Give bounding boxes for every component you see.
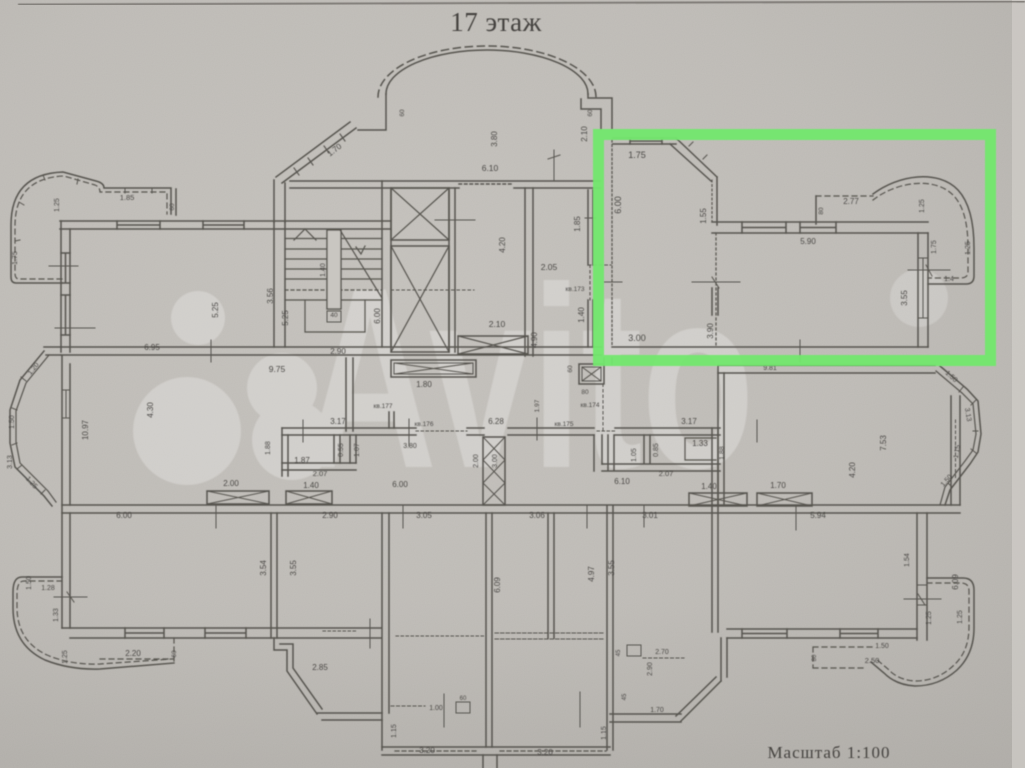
svg-text:Avito: Avito: [303, 233, 753, 522]
svg-text:6.00: 6.00: [116, 511, 132, 520]
svg-text:3.00: 3.00: [492, 454, 499, 468]
svg-text:1.54: 1.54: [904, 553, 911, 567]
svg-text:17 этаж: 17 этаж: [450, 7, 542, 37]
svg-text:1.75: 1.75: [628, 150, 646, 160]
svg-text:6.95: 6.95: [144, 343, 160, 352]
svg-text:2.85: 2.85: [312, 663, 328, 672]
svg-text:6.09: 6.09: [493, 577, 502, 593]
svg-text:2.90: 2.90: [647, 662, 654, 676]
svg-text:4.20: 4.20: [848, 462, 857, 478]
svg-text:кв.176: кв.176: [415, 421, 434, 428]
svg-text:1.75: 1.75: [931, 240, 938, 254]
svg-text:1.97: 1.97: [534, 399, 541, 412]
svg-text:60: 60: [169, 203, 176, 211]
svg-text:1.70: 1.70: [770, 481, 786, 490]
svg-text:1.25: 1.25: [62, 650, 69, 664]
svg-text:1.70: 1.70: [650, 707, 664, 714]
svg-text:2.05: 2.05: [541, 262, 558, 272]
svg-text:9.81: 9.81: [763, 365, 777, 372]
svg-text:1.85: 1.85: [120, 193, 135, 202]
svg-text:6.00: 6.00: [613, 196, 623, 214]
svg-text:1.75: 1.75: [12, 251, 19, 265]
svg-text:6.00: 6.00: [392, 480, 408, 489]
svg-text:1.50: 1.50: [26, 576, 33, 590]
svg-text:3.55: 3.55: [900, 290, 909, 306]
svg-text:3.20: 3.20: [419, 746, 435, 755]
svg-text:5.90: 5.90: [800, 237, 816, 246]
svg-text:5.94: 5.94: [810, 511, 826, 520]
svg-text:3.00: 3.00: [628, 333, 646, 343]
svg-text:5.25: 5.25: [281, 310, 290, 326]
svg-text:2.00: 2.00: [223, 479, 239, 488]
svg-text:3.17: 3.17: [330, 417, 346, 426]
svg-text:1.87: 1.87: [294, 456, 310, 465]
svg-text:5.25: 5.25: [211, 302, 220, 318]
svg-text:4.20: 4.20: [498, 237, 507, 253]
svg-text:3.80: 3.80: [403, 443, 417, 450]
svg-text:1.25: 1.25: [926, 611, 933, 625]
svg-text:0.85: 0.85: [653, 443, 660, 457]
svg-text:3.55: 3.55: [607, 560, 616, 576]
svg-text:1.55: 1.55: [699, 208, 708, 224]
svg-text:2.77: 2.77: [843, 197, 859, 206]
svg-text:3.55: 3.55: [289, 560, 298, 576]
svg-text:6.10: 6.10: [614, 477, 630, 486]
svg-text:1.88: 1.88: [719, 446, 726, 460]
svg-text:4.90: 4.90: [530, 332, 539, 348]
svg-text:3.80: 3.80: [490, 131, 499, 147]
svg-text:45: 45: [622, 693, 628, 700]
svg-text:0.55: 0.55: [338, 443, 345, 457]
svg-text:1.25: 1.25: [957, 610, 964, 624]
svg-text:60: 60: [567, 365, 574, 373]
svg-text:1.33: 1.33: [692, 439, 708, 448]
svg-text:2.10: 2.10: [580, 126, 589, 142]
svg-text:2.70: 2.70: [655, 649, 669, 656]
svg-text:1.85: 1.85: [573, 216, 582, 232]
svg-text:3.20: 3.20: [537, 748, 553, 757]
svg-text:7.53: 7.53: [879, 435, 888, 451]
svg-text:6.28: 6.28: [488, 417, 504, 426]
svg-text:кв.175: кв.175: [555, 421, 574, 428]
svg-text:1.15: 1.15: [391, 724, 398, 738]
svg-text:кв.177: кв.177: [374, 403, 393, 410]
svg-text:2.90: 2.90: [330, 347, 346, 356]
svg-text:40: 40: [330, 312, 338, 319]
svg-text:1.25: 1.25: [965, 241, 972, 255]
svg-text:3.13: 3.13: [7, 455, 14, 469]
svg-text:60: 60: [587, 109, 594, 117]
svg-text:10.97: 10.97: [81, 419, 90, 440]
svg-text:1.80: 1.80: [416, 380, 432, 389]
svg-text:1.25: 1.25: [919, 199, 926, 213]
svg-text:3.05: 3.05: [416, 511, 432, 520]
svg-text:80: 80: [818, 207, 825, 215]
svg-text:6.09: 6.09: [951, 574, 960, 590]
svg-text:3.17: 3.17: [681, 417, 697, 426]
svg-text:3.54: 3.54: [259, 560, 268, 576]
svg-text:1.40: 1.40: [577, 307, 586, 323]
svg-text:3.06: 3.06: [529, 511, 545, 520]
svg-text:1.00: 1.00: [429, 705, 443, 712]
svg-text:3.90: 3.90: [706, 323, 715, 339]
svg-text:3.56: 3.56: [266, 288, 275, 304]
svg-text:9.75: 9.75: [269, 364, 286, 374]
svg-text:4.30: 4.30: [146, 402, 155, 418]
svg-text:4.97: 4.97: [587, 566, 596, 582]
svg-text:2.00: 2.00: [473, 454, 480, 468]
svg-text:1.50: 1.50: [9, 415, 16, 429]
svg-text:1.15: 1.15: [601, 726, 608, 740]
svg-text:1.88: 1.88: [265, 441, 272, 455]
svg-text:1.07: 1.07: [354, 443, 361, 457]
svg-text:кв.174: кв.174: [581, 402, 600, 409]
svg-text:1.33: 1.33: [53, 608, 60, 622]
svg-text:2.10: 2.10: [489, 319, 506, 329]
svg-text:80: 80: [812, 654, 818, 661]
svg-text:1.4: 1.4: [944, 276, 954, 283]
svg-text:2.07: 2.07: [313, 469, 328, 478]
svg-text:45: 45: [616, 649, 622, 656]
svg-text:1.28: 1.28: [41, 585, 55, 592]
svg-text:кв.173: кв.173: [566, 286, 585, 293]
svg-text:Масштаб 1:100: Масштаб 1:100: [767, 743, 890, 762]
svg-text:6.10: 6.10: [482, 163, 499, 173]
svg-text:1.05: 1.05: [631, 448, 638, 462]
svg-text:3.01: 3.01: [642, 511, 658, 520]
svg-text:1.40: 1.40: [320, 263, 327, 277]
svg-text:60: 60: [399, 109, 406, 117]
svg-text:2.07: 2.07: [659, 469, 674, 478]
svg-text:2.50: 2.50: [865, 656, 880, 665]
svg-text:2.90: 2.90: [322, 511, 338, 520]
svg-text:60: 60: [460, 696, 467, 702]
svg-text:80: 80: [581, 389, 589, 396]
svg-text:1.40: 1.40: [701, 482, 717, 491]
svg-text:2.20: 2.20: [125, 649, 141, 658]
svg-text:1.25: 1.25: [54, 198, 61, 212]
svg-text:6.00: 6.00: [373, 308, 382, 324]
svg-text:60: 60: [171, 650, 178, 658]
svg-text:1.40: 1.40: [303, 481, 319, 490]
svg-text:1.50: 1.50: [875, 643, 889, 650]
